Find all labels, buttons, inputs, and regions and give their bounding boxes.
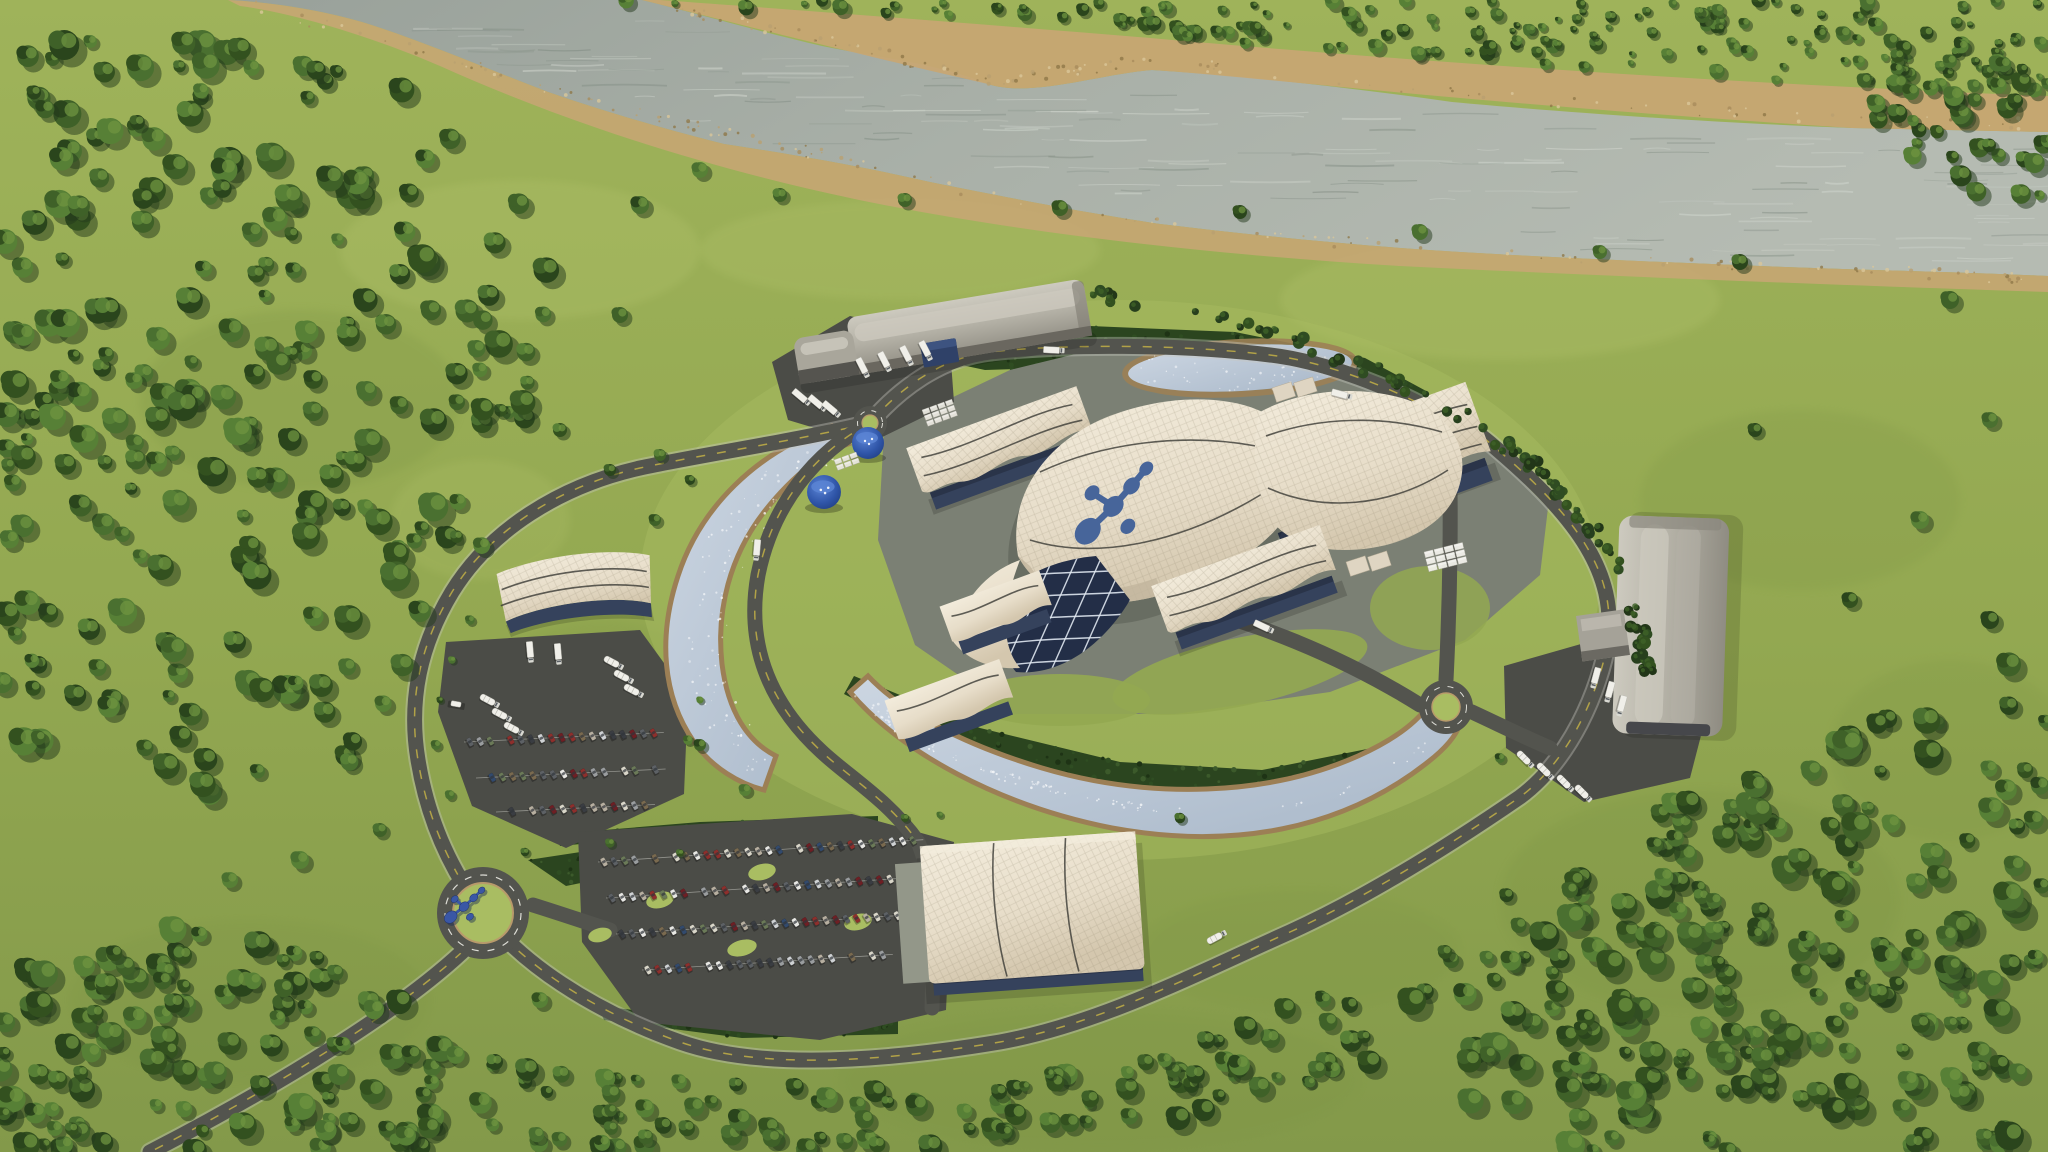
aerial-rendering [0,0,2048,1152]
roundabout-east [1419,680,1473,734]
scene-canvas [0,0,2048,1152]
pad-grass-3 [1370,566,1490,650]
warehouse-east-annex [1576,609,1630,661]
visitor-building-south [894,831,1152,1006]
roundabout-southwest [437,867,529,959]
